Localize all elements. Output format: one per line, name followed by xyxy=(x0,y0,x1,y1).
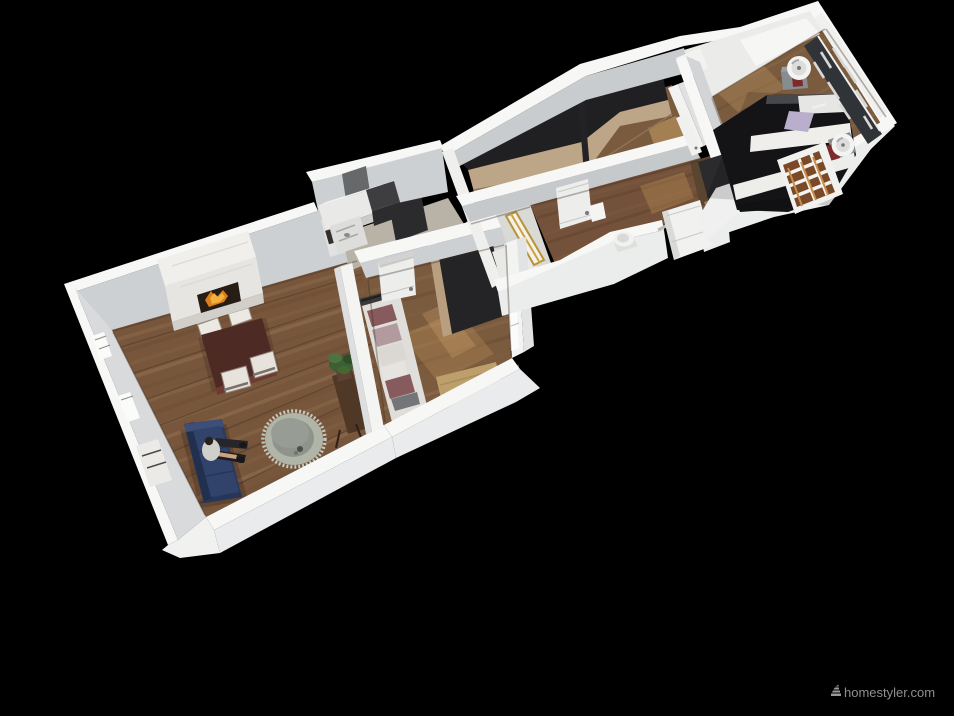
svg-text:homestyler.com: homestyler.com xyxy=(844,685,935,700)
